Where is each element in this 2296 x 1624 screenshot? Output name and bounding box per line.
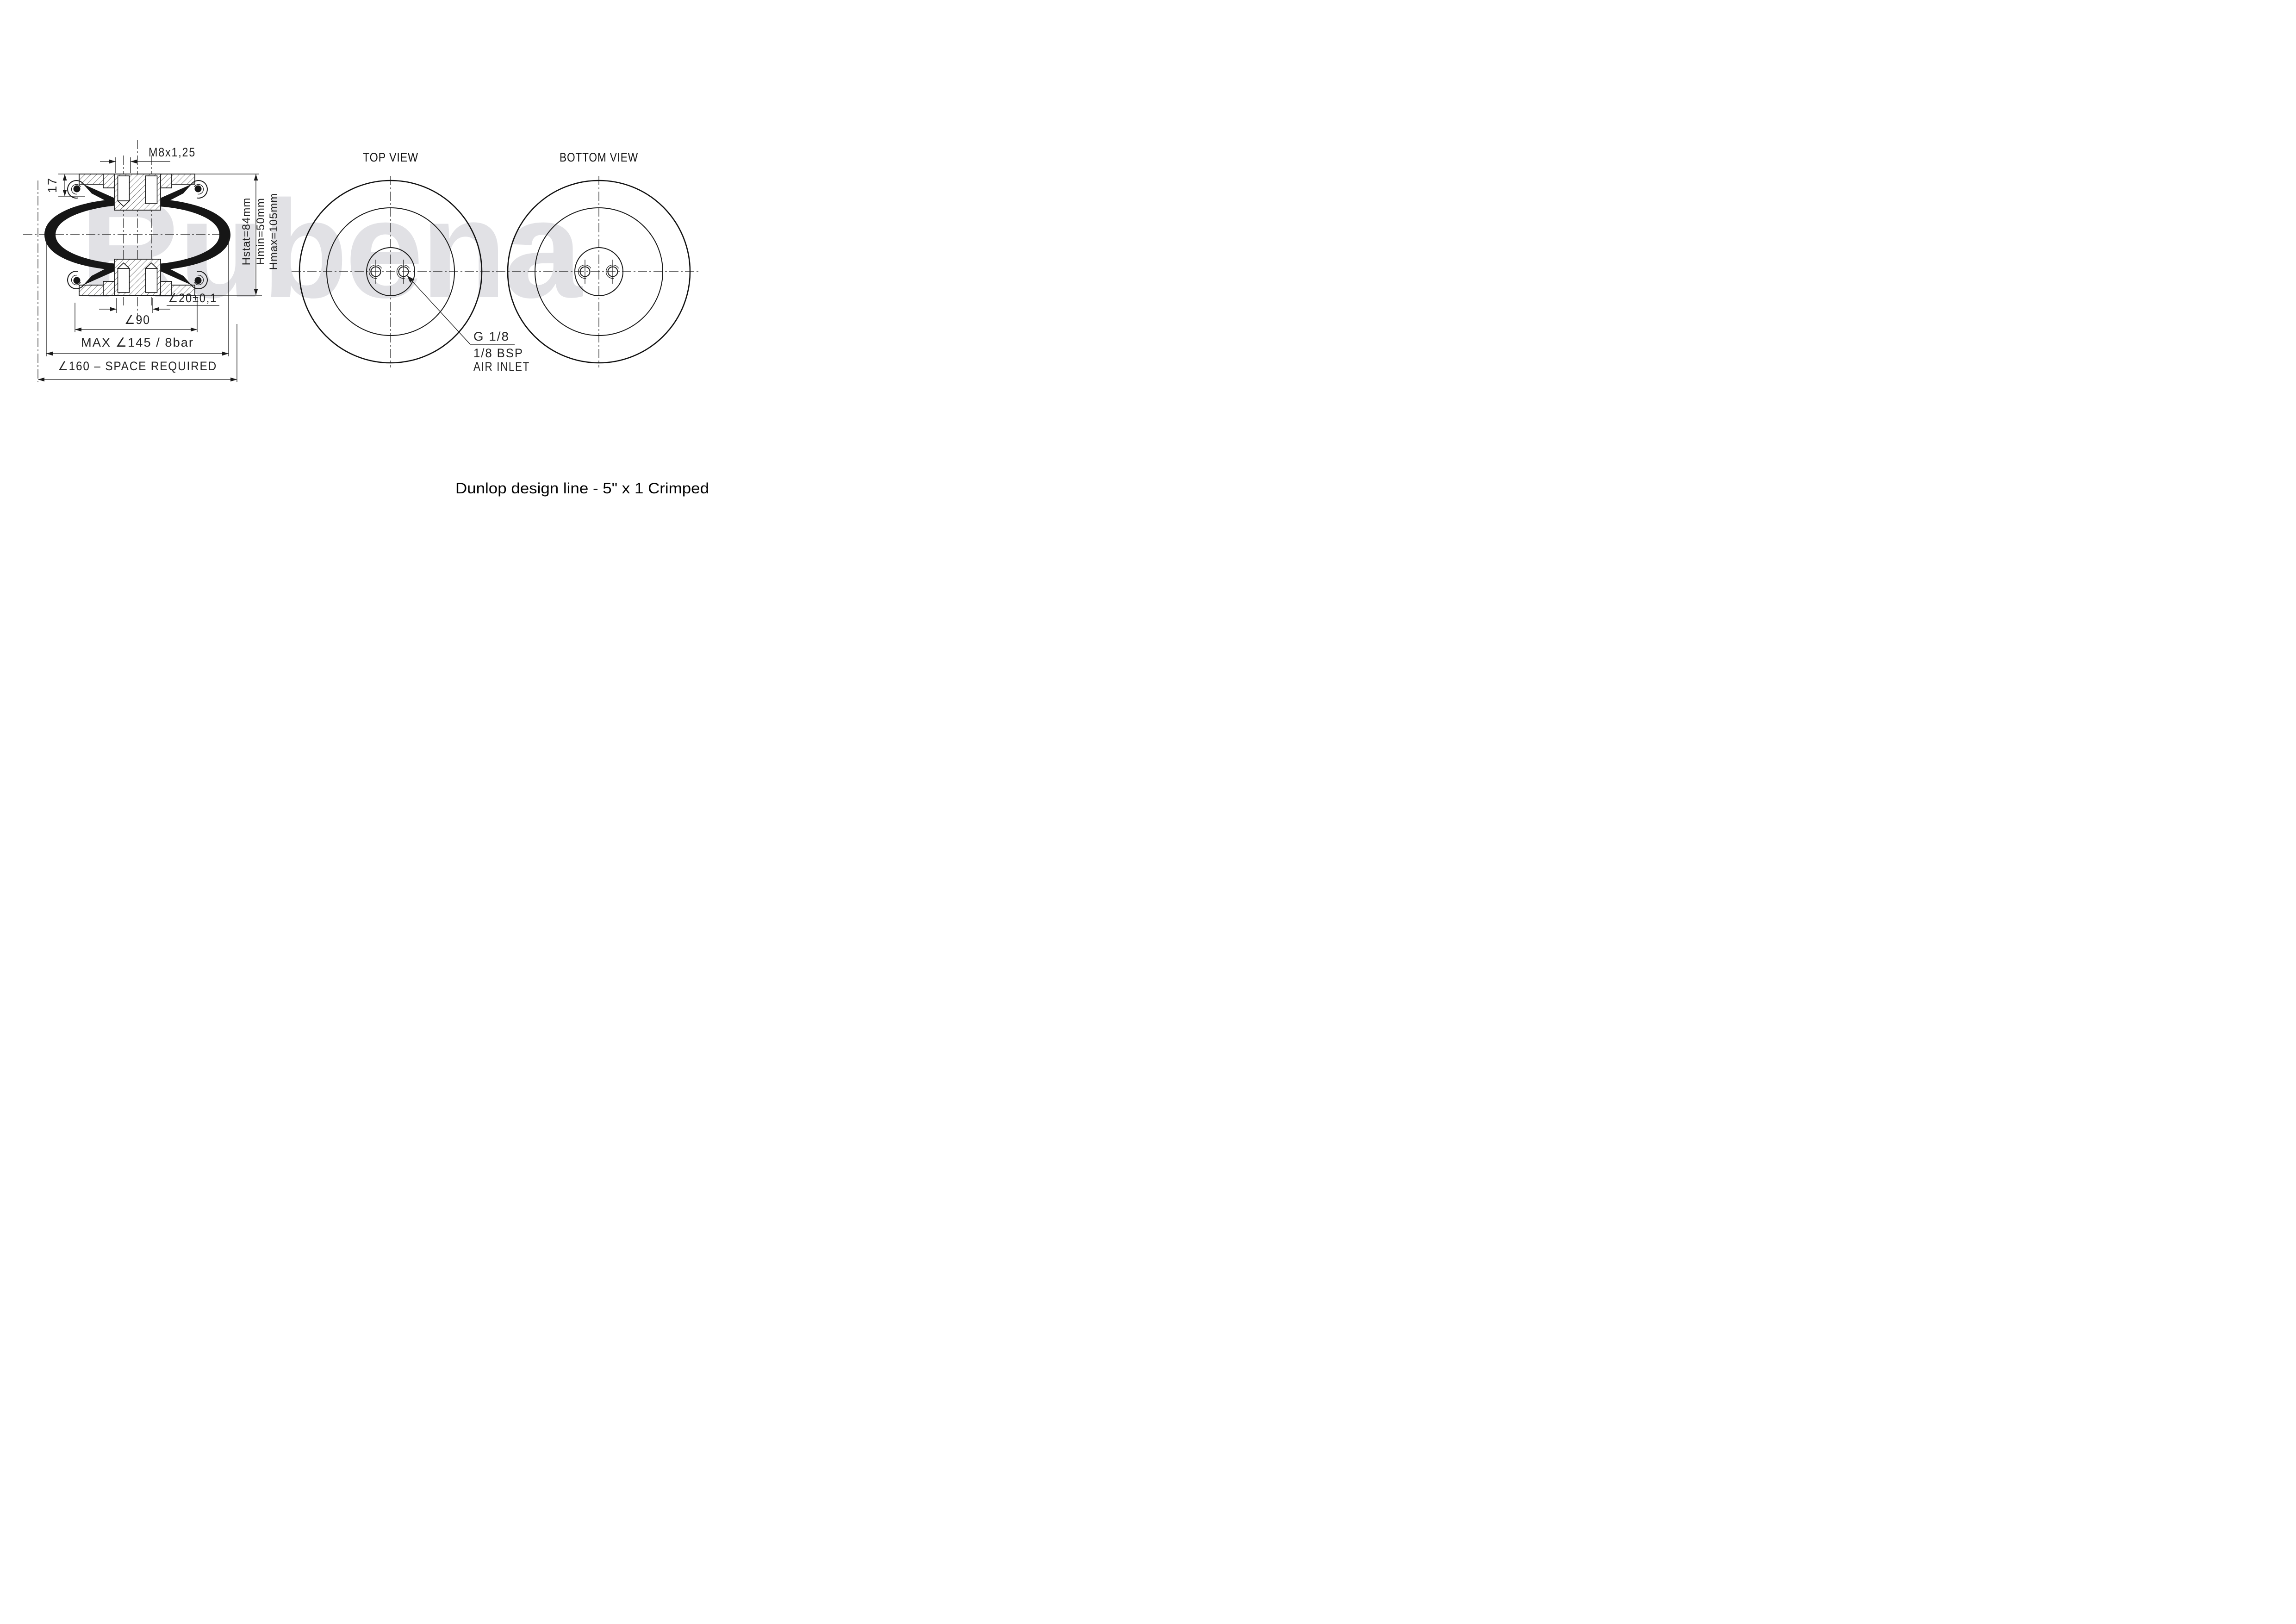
stud-hole-bottom-right: [146, 268, 157, 292]
stud-hole-top-left: [118, 176, 130, 201]
space-required-label: ∠160 – SPACE REQUIRED: [58, 359, 217, 373]
stud-pitch-label: ∠20±0,1: [168, 291, 217, 305]
technical-drawing: Rubena: [0, 0, 726, 513]
dim-m8-thread: M8x1,25: [100, 145, 196, 173]
stud-hole-bottom-left: [118, 268, 130, 292]
max-dia-label: MAX ∠145 / 8bar: [81, 336, 194, 349]
bead-bottom-left: [74, 277, 81, 284]
drawing-canvas: Rubena: [0, 0, 726, 513]
air-inlet-thread-label: G 1/8: [473, 330, 510, 343]
drawing-title: Dunlop design line - 5" x 1 Crimped: [455, 480, 709, 497]
bottom-view-title: BOTTOM VIEW: [560, 150, 638, 164]
bead-top-right: [195, 186, 202, 193]
plate-height-label: 17: [45, 177, 59, 193]
hmin-label: Hmin=50mm: [255, 198, 267, 265]
bead-top-left: [74, 186, 81, 193]
stud-hole-top-right: [146, 176, 157, 204]
bead-bottom-right: [195, 277, 202, 284]
top-view-title: TOP VIEW: [363, 150, 418, 164]
hmax-label: Hmax=105mm: [268, 193, 280, 270]
hstat-label: Hstat=84mm: [240, 198, 253, 266]
air-inlet-label: AIR INLET: [473, 360, 530, 373]
plate-dia-label: ∠90: [124, 313, 150, 327]
m8-label: M8x1,25: [149, 145, 196, 159]
air-inlet-bsp-label: 1/8 BSP: [473, 346, 523, 360]
dim-space-required: ∠160 – SPACE REQUIRED: [38, 324, 237, 382]
